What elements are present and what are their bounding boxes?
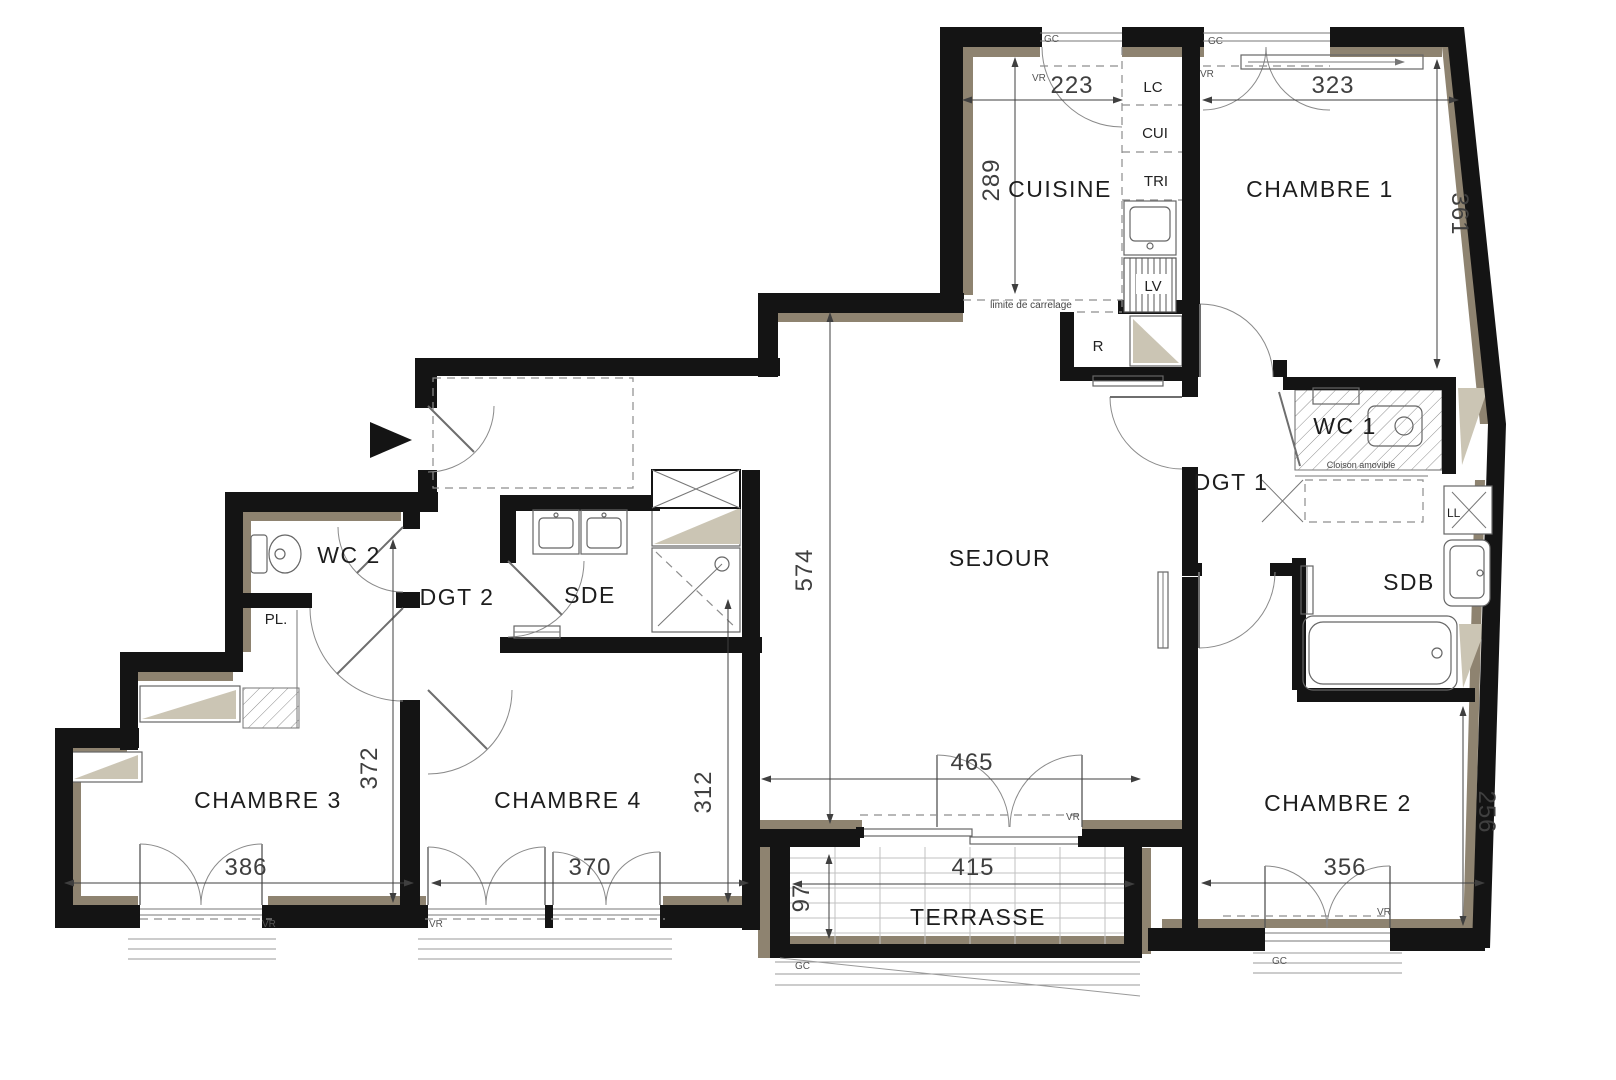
room-label-sdb: SDB <box>1383 569 1435 595</box>
room-label-dgt2: DGT 2 <box>420 584 495 610</box>
dim-cuisine-height: 289 <box>978 158 1005 201</box>
dim-sejour-height: 574 <box>791 548 818 591</box>
label-tri: TRI <box>1144 173 1168 190</box>
tag-gc-1: GC <box>1044 34 1059 45</box>
floor-plan: 223 323 289 361 574 465 415 97 356 256 3… <box>0 0 1616 1080</box>
label-lv: LV <box>1144 278 1161 295</box>
dim-chambre1-height: 361 <box>1446 192 1473 235</box>
tag-gc-3: GC <box>795 961 810 972</box>
sde-double-sink <box>533 510 627 554</box>
tag-vr-5: VR <box>1066 812 1080 823</box>
dim-chambre3-height: 372 <box>356 746 383 789</box>
room-label-cuisine: CUISINE <box>1008 176 1112 202</box>
chambre1-closet <box>1241 55 1423 69</box>
dim-chambre2-height: 256 <box>1473 790 1500 833</box>
wc2-toilet <box>251 535 301 573</box>
dim-terrasse-width: 415 <box>951 854 994 881</box>
shower <box>652 548 740 632</box>
label-ll: LL <box>1447 506 1461 520</box>
tag-vr-3: VR <box>262 919 276 930</box>
tag-vr-6: VR <box>1377 907 1391 918</box>
label-lc: LC <box>1143 79 1162 96</box>
dim-cuisine-width: 223 <box>1050 72 1093 99</box>
tag-vr-4: VR <box>429 919 443 930</box>
room-label-sde: SDE <box>564 582 616 608</box>
label-cui: CUI <box>1142 125 1168 142</box>
floor-plan-drawing: 223 323 289 361 574 465 415 97 356 256 3… <box>0 0 1616 1080</box>
room-label-terrasse: TERRASSE <box>910 904 1046 930</box>
dashed-lines <box>297 47 1428 728</box>
dim-sejour-width: 465 <box>950 749 993 776</box>
tag-gc-4: GC <box>1272 956 1287 967</box>
dim-chambre3-width: 386 <box>224 854 267 881</box>
dim-chambre2-width: 356 <box>1323 854 1366 881</box>
room-label-dgt1: DGT 1 <box>1194 469 1269 495</box>
dim-terrasse-depth: 97 <box>788 884 815 913</box>
duct-box <box>652 470 740 508</box>
annotation-tile-limit: limite de carrelage <box>990 300 1072 311</box>
dim-chambre4-width: 370 <box>568 854 611 881</box>
room-label-sejour: SEJOUR <box>949 545 1051 571</box>
tag-vr-1: VR <box>1032 73 1046 84</box>
room-label-chambre1: CHAMBRE 1 <box>1246 176 1394 202</box>
walls <box>55 27 1506 958</box>
sejour-radiator <box>1158 572 1168 648</box>
kitchen-sink <box>1124 201 1176 255</box>
sdb-washbasin <box>1444 540 1490 606</box>
tag-vr-2: VR <box>1200 69 1214 80</box>
room-label-wc2: WC 2 <box>317 542 381 568</box>
dim-chambre1-width: 323 <box>1311 72 1354 99</box>
room-label-r: R <box>1093 338 1104 355</box>
hatched-areas <box>243 390 1442 728</box>
dim-chambre4-height: 312 <box>690 770 717 813</box>
room-label-chambre2: CHAMBRE 2 <box>1264 790 1412 816</box>
room-label-pl: PL. <box>265 611 288 628</box>
room-label-wc1: WC 1 <box>1313 413 1377 439</box>
entrance-arrow-icon <box>370 422 412 458</box>
annotation-movable-partition: Cloison amovible <box>1327 460 1396 470</box>
tag-gc-2: GC <box>1208 36 1223 47</box>
bathtub <box>1303 616 1457 690</box>
room-label-chambre3: CHAMBRE 3 <box>194 787 342 813</box>
room-label-chambre4: CHAMBRE 4 <box>494 787 642 813</box>
